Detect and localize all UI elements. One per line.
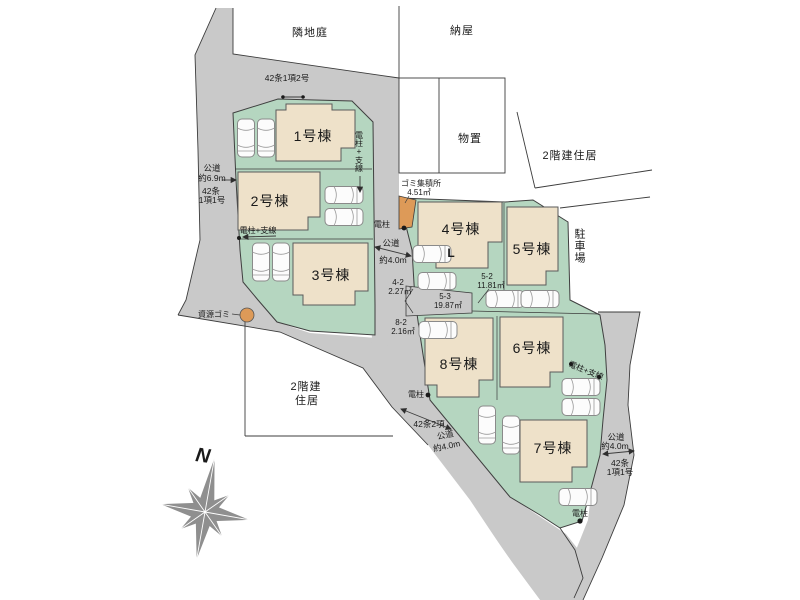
building-5-label: 5号棟 bbox=[513, 241, 552, 257]
pole-label-top: 電柱 bbox=[374, 219, 390, 229]
garbage-station-label-1: ゴミ集積所 bbox=[401, 178, 441, 188]
car-icon bbox=[413, 246, 451, 263]
parcel-4-2-id: 4-2 bbox=[392, 278, 404, 287]
recycle-label: 資源ゴミ bbox=[198, 309, 230, 319]
site-plan-page: N 隣地庭 納屋 物置 2階建住居 2階建 住居 駐車場 1号棟 2号棟 3号棟… bbox=[0, 0, 800, 600]
road-center-width-2: 約4.0m bbox=[379, 255, 406, 265]
road-left-width-1: 公道 bbox=[203, 163, 221, 173]
storage-shed-outline bbox=[399, 78, 505, 173]
pole-dot-bottom bbox=[577, 518, 582, 523]
l-mark: L bbox=[447, 246, 454, 260]
car-icon bbox=[418, 273, 456, 290]
building-6-label: 6号棟 bbox=[513, 340, 552, 356]
pole-wire-label-v: 電柱+支線 bbox=[355, 131, 364, 172]
parcel-8-2-id: 8-2 bbox=[395, 318, 407, 327]
pole-dot-top bbox=[402, 226, 407, 231]
recycle-spot bbox=[240, 308, 254, 322]
parcel-4-2-area: 2.27㎡ bbox=[388, 287, 412, 296]
pole-label-mid: 電柱 bbox=[408, 389, 424, 399]
building-3-label: 3号棟 bbox=[312, 267, 351, 283]
car-icon bbox=[273, 243, 290, 281]
area-house-left-line1: 2階建 bbox=[290, 379, 321, 393]
pole-wire-dot-c bbox=[237, 236, 241, 240]
area-house-left-line2: 住居 bbox=[295, 393, 319, 407]
car-icon bbox=[419, 322, 457, 339]
area-storage: 物置 bbox=[458, 131, 482, 145]
parcel-5-3-id: 5-3 bbox=[439, 292, 451, 301]
parcel-5-2-id: 5-2 bbox=[481, 272, 493, 281]
road-center-width-1: 公道 bbox=[382, 238, 400, 248]
building-2-label: 2号棟 bbox=[251, 193, 290, 209]
pole-wire-label-h: 電柱+支線 bbox=[240, 225, 277, 235]
building-8-label: 8号棟 bbox=[440, 356, 479, 372]
survey-marker-dot bbox=[281, 95, 284, 98]
parcel-5-2-area: 11.81㎡ bbox=[477, 281, 504, 290]
car-icon bbox=[258, 119, 275, 157]
road-left-class-2: 1項1号 bbox=[199, 195, 225, 205]
road-right-class-2: 1項1号 bbox=[607, 467, 633, 477]
pole-label-bottom: 電柱 bbox=[572, 508, 588, 518]
parcel-8-2-area: 2.16㎡ bbox=[391, 327, 415, 336]
boundary-right-a bbox=[517, 112, 535, 188]
building-7-label: 7号棟 bbox=[534, 440, 573, 456]
parcel-5-3-area: 19.87㎡ bbox=[434, 301, 462, 310]
survey-marker-dot bbox=[301, 95, 304, 98]
road-top-class: 42条1項2号 bbox=[265, 73, 309, 83]
car-icon bbox=[479, 406, 496, 444]
car-icon bbox=[562, 399, 600, 416]
car-icon bbox=[521, 291, 559, 308]
road-bottom-class: 42条2項 bbox=[413, 419, 445, 429]
boundary-right-c bbox=[560, 197, 650, 208]
area-barn: 納屋 bbox=[450, 24, 474, 37]
pole-dot-mid bbox=[426, 393, 431, 398]
car-icon bbox=[325, 187, 363, 204]
area-house-right: 2階建住居 bbox=[542, 148, 597, 162]
car-icon bbox=[325, 209, 363, 226]
car-icon bbox=[559, 489, 597, 506]
site-plan-drawing: N 隣地庭 納屋 物置 2階建住居 2階建 住居 駐車場 1号棟 2号棟 3号棟… bbox=[0, 0, 800, 600]
boundary-right-b bbox=[535, 170, 652, 188]
garbage-station-label-2: 4.51㎡ bbox=[407, 188, 431, 197]
building-1-label: 1号棟 bbox=[294, 128, 333, 144]
car-icon bbox=[486, 291, 524, 308]
car-icon bbox=[503, 416, 520, 454]
area-neighbor-garden: 隣地庭 bbox=[292, 25, 328, 39]
area-parking-lot: 駐車場 bbox=[573, 227, 586, 264]
car-icon bbox=[253, 243, 270, 281]
building-4-label: 4号棟 bbox=[442, 221, 481, 237]
road-right-width-2: 約4.0m bbox=[601, 441, 628, 451]
car-icon bbox=[562, 379, 600, 396]
car-icon bbox=[238, 119, 255, 157]
road-left-width-2: 約6.9m bbox=[198, 173, 225, 183]
